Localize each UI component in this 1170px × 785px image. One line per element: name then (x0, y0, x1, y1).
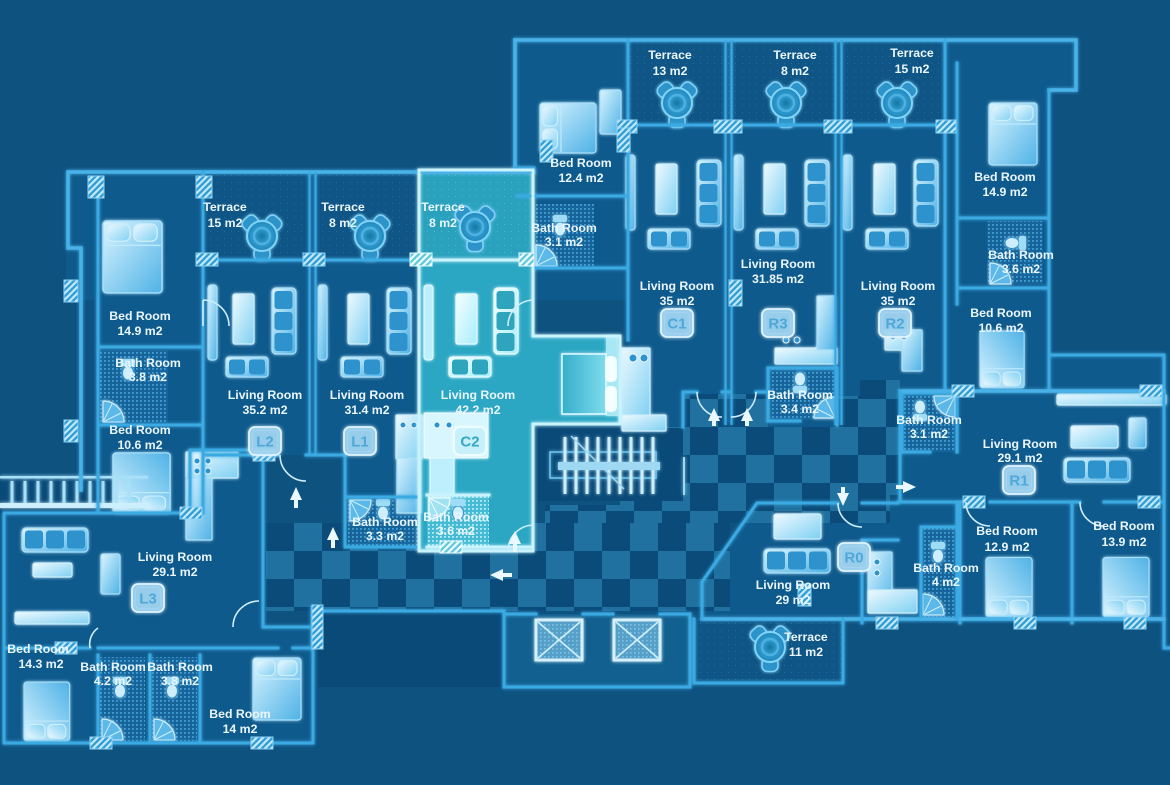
svg-text:14.3 m2: 14.3 m2 (18, 657, 63, 671)
svg-text:Bed Room: Bed Room (109, 423, 171, 437)
svg-text:4 m2: 4 m2 (932, 575, 960, 589)
svg-text:Bath Room: Bath Room (913, 561, 979, 575)
svg-text:C1: C1 (667, 316, 686, 333)
svg-text:Living Room: Living Room (441, 388, 516, 402)
svg-text:4.2 m2: 4.2 m2 (94, 674, 132, 688)
svg-text:Bed Room: Bed Room (1093, 519, 1155, 533)
svg-text:L1: L1 (351, 434, 369, 451)
svg-text:Living Room: Living Room (640, 279, 715, 293)
svg-text:Bed Room: Bed Room (974, 170, 1036, 184)
svg-text:Bath Room: Bath Room (988, 248, 1054, 262)
svg-text:13.9 m2: 13.9 m2 (1101, 535, 1146, 549)
svg-text:11 m2: 11 m2 (789, 645, 823, 659)
svg-text:8 m2: 8 m2 (781, 64, 809, 78)
svg-text:R2: R2 (885, 316, 904, 333)
svg-text:Terrace: Terrace (421, 200, 465, 214)
svg-text:R3: R3 (768, 316, 787, 333)
svg-text:15 m2: 15 m2 (895, 62, 930, 76)
svg-text:Terrace: Terrace (784, 630, 828, 644)
svg-text:Bed Room: Bed Room (7, 642, 69, 656)
svg-text:Terrace: Terrace (203, 200, 247, 214)
svg-text:35 m2: 35 m2 (881, 294, 916, 308)
svg-text:10.6 m2: 10.6 m2 (978, 321, 1023, 335)
svg-text:Bath Room: Bath Room (423, 510, 489, 524)
svg-text:31.85 m2: 31.85 m2 (752, 272, 804, 286)
svg-text:Bath Room: Bath Room (80, 660, 146, 674)
svg-text:Bed Room: Bed Room (550, 156, 612, 170)
svg-text:R1: R1 (1009, 473, 1028, 490)
svg-text:35 m2: 35 m2 (660, 294, 695, 308)
svg-text:29 m2: 29 m2 (776, 593, 811, 607)
svg-text:Bath Room: Bath Room (531, 221, 597, 235)
svg-text:8 m2: 8 m2 (329, 216, 357, 230)
svg-text:14.9 m2: 14.9 m2 (982, 185, 1027, 199)
svg-text:10.6 m2: 10.6 m2 (117, 438, 162, 452)
svg-text:C2: C2 (460, 434, 479, 451)
svg-text:Terrace: Terrace (648, 48, 692, 62)
svg-text:Living Room: Living Room (741, 257, 816, 271)
svg-text:3.8 m2: 3.8 m2 (161, 674, 199, 688)
svg-text:14 m2: 14 m2 (223, 722, 258, 736)
svg-text:8 m2: 8 m2 (429, 216, 457, 230)
svg-text:3.8 m2: 3.8 m2 (129, 370, 167, 384)
svg-text:3.6 m2: 3.6 m2 (437, 524, 475, 538)
svg-text:3.1 m2: 3.1 m2 (545, 235, 583, 249)
svg-text:Bath Room: Bath Room (896, 413, 962, 427)
svg-text:Bath Room: Bath Room (767, 388, 833, 402)
svg-text:3.4 m2: 3.4 m2 (781, 402, 819, 416)
svg-text:Bath Room: Bath Room (115, 356, 181, 370)
svg-text:Bed Room: Bed Room (970, 306, 1032, 320)
svg-text:Bath Room: Bath Room (352, 515, 418, 529)
svg-text:Living Room: Living Room (228, 388, 303, 402)
svg-text:Bed Room: Bed Room (976, 524, 1038, 538)
svg-text:12.4 m2: 12.4 m2 (558, 171, 603, 185)
svg-text:Living Room: Living Room (861, 279, 936, 293)
svg-text:Terrace: Terrace (321, 200, 365, 214)
svg-text:35.2 m2: 35.2 m2 (242, 403, 287, 417)
svg-text:15 m2: 15 m2 (208, 216, 243, 230)
svg-text:Bath Room: Bath Room (147, 660, 213, 674)
svg-text:L2: L2 (256, 434, 274, 451)
svg-text:3.3 m2: 3.3 m2 (366, 529, 404, 543)
svg-text:Bed Room: Bed Room (109, 309, 171, 323)
svg-text:3.6 m2: 3.6 m2 (1002, 262, 1040, 276)
svg-text:29.1 m2: 29.1 m2 (997, 451, 1042, 465)
svg-text:Living Room: Living Room (330, 388, 405, 402)
svg-text:Terrace: Terrace (890, 46, 934, 60)
svg-text:12.9 m2: 12.9 m2 (984, 540, 1029, 554)
svg-text:R0: R0 (844, 550, 863, 567)
svg-text:31.4 m2: 31.4 m2 (344, 403, 389, 417)
svg-text:Terrace: Terrace (773, 48, 817, 62)
svg-text:Living Room: Living Room (983, 437, 1058, 451)
svg-text:L3: L3 (139, 591, 157, 608)
svg-text:13 m2: 13 m2 (653, 64, 688, 78)
svg-text:42.2 m2: 42.2 m2 (455, 403, 500, 417)
svg-text:14.9 m2: 14.9 m2 (117, 324, 162, 338)
svg-text:Living Room: Living Room (756, 578, 831, 592)
svg-text:3.1 m2: 3.1 m2 (910, 427, 948, 441)
svg-text:Living Room: Living Room (138, 550, 213, 564)
svg-text:29.1 m2: 29.1 m2 (152, 565, 197, 579)
svg-text:Bed Room: Bed Room (209, 707, 271, 721)
